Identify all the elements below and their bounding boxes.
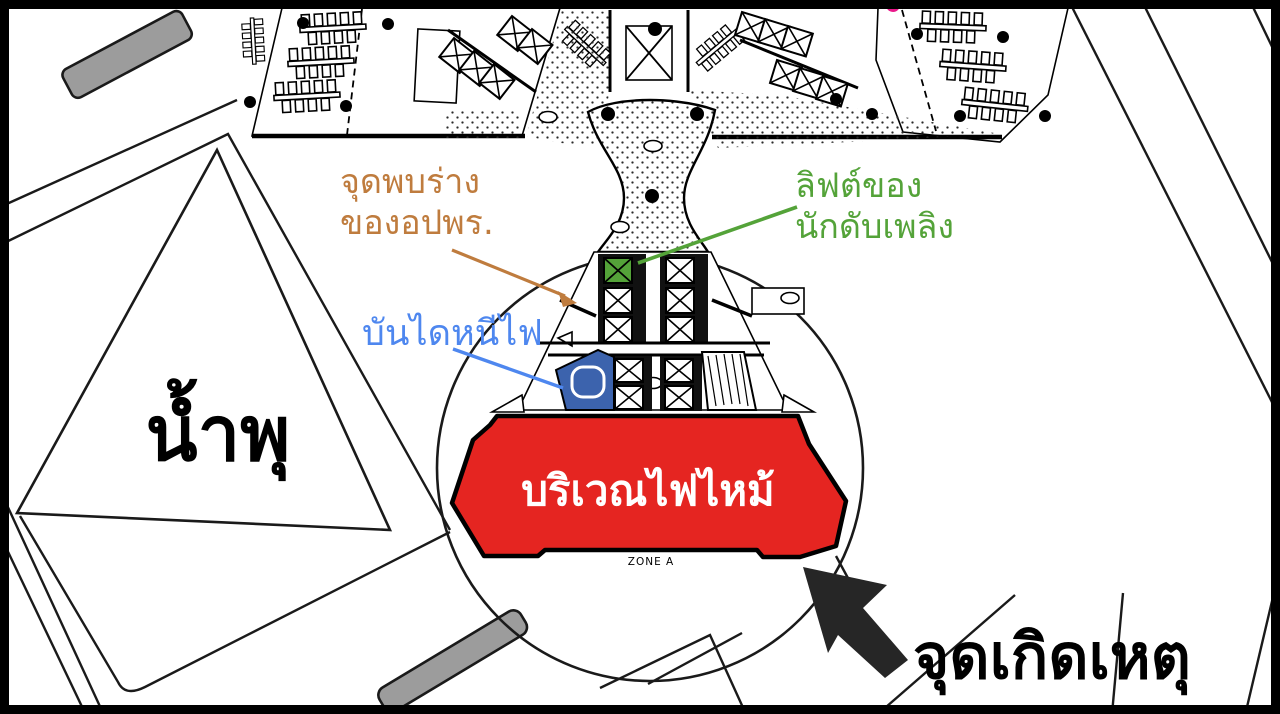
- label-body-found-line1: จุดพบร่าง: [340, 162, 480, 202]
- label-fire-area: บริเวณไฟไหม้: [521, 466, 774, 515]
- label-fire-escape: บันไดหนีไฟ: [362, 312, 543, 354]
- fire-area-zone: บริเวณไฟไหม้ ZONE A: [452, 416, 846, 568]
- label-firefighter-lift-line1: ลิฟต์ของ: [795, 166, 922, 206]
- label-body-found-line2: ของอปพร.: [340, 203, 494, 243]
- label-fountain: น้ำพุ: [146, 378, 291, 482]
- firefighter-elevator-box: [604, 258, 632, 283]
- map-canvas: บริเวณไฟไหม้ ZONE A จุดพบร่าง ของอปพร. ล…: [0, 0, 1280, 714]
- label-body-found: จุดพบร่าง ของอปพร.: [340, 162, 494, 243]
- label-incident-point: จุดเกิดเหตุ: [913, 620, 1191, 695]
- label-zone-a: ZONE A: [628, 556, 674, 568]
- floor-plan-map: บริเวณไฟไหม้ ZONE A จุดพบร่าง ของอปพร. ล…: [0, 0, 1280, 714]
- label-firefighter-lift-line2: นักดับเพลิง: [795, 207, 954, 247]
